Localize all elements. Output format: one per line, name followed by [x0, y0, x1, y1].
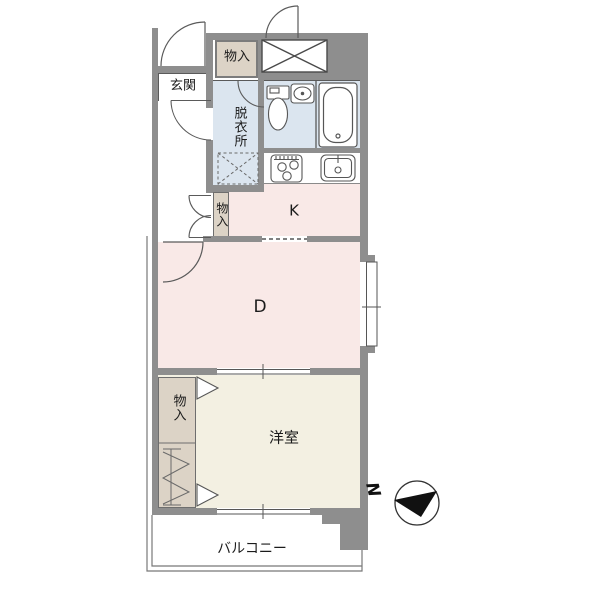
floor-plan: N 玄関 物入 脱衣所 物入 K D 物入 洋室 バルコニー — [0, 0, 600, 600]
hanger-pipe-icon — [163, 449, 189, 505]
storage-double-door-icon — [189, 196, 211, 238]
bathtub-icon — [319, 83, 357, 147]
north-arrow-icon: N — [361, 480, 439, 525]
folding-door-icon — [197, 377, 218, 506]
washer-space-icon — [218, 153, 258, 184]
shaft-door-swing-icon — [266, 6, 298, 38]
shaft-x-icon — [262, 40, 327, 72]
label-western-room: 洋室 — [269, 429, 299, 446]
sliding-door-balcony-icon — [217, 504, 310, 519]
label-storage-hall: 物入 — [214, 202, 228, 228]
label-dressing: 脱衣所 — [231, 106, 246, 148]
bath-door-swing-icon — [238, 81, 264, 107]
label-balcony: バルコニー — [217, 541, 287, 557]
entrance-door-swing-icon — [161, 22, 205, 66]
compass-north-label: N — [361, 480, 384, 499]
label-closet: 物入 — [170, 394, 185, 422]
dining-door-swing-icon — [163, 242, 203, 282]
label-storage-top: 物入 — [224, 51, 250, 66]
kitchen-sink-icon — [321, 155, 355, 181]
stove-icon — [271, 155, 302, 182]
toilet-icon — [267, 86, 289, 130]
label-kitchen: K — [289, 202, 299, 219]
dining-window-icon — [362, 262, 381, 346]
label-dining: D — [253, 298, 266, 318]
sliding-door-top-icon — [217, 364, 310, 379]
dressing-door-swing-icon — [171, 101, 211, 141]
washbasin-icon — [291, 84, 314, 103]
label-genkan: 玄関 — [170, 80, 196, 95]
plan-detail-layer: N — [0, 0, 600, 600]
